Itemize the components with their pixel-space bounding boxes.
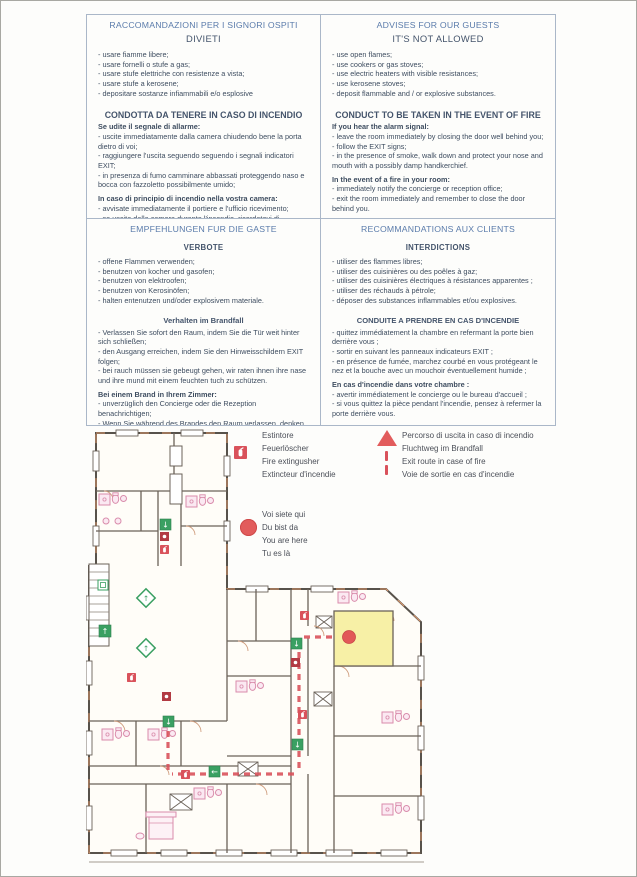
section-heading: CONDOTTA DA TENERE IN CASO DI INCENDIO [98,110,309,122]
list-item: - halten entenutzen und/oder explosivem … [98,296,309,306]
list-item: - follow the EXIT signs; [332,142,544,152]
fire-extinguisher-icon [160,545,169,554]
list-item: - usare fornelli o stufe a gas; [98,60,309,70]
section-lead: Bei einem Brand in Ihrem Zimmer: [98,390,309,400]
list-item: - offene Flammen verwenden; [98,257,309,267]
svg-text:↑: ↑ [102,627,109,636]
svg-text:↓: ↓ [294,741,301,750]
list-item: - si vous quittez la pièce pendant l'inc… [332,399,544,418]
svg-text:↑: ↑ [143,644,149,653]
exit-sign-icon: ← [209,766,220,777]
list-item: - in presenza di fumo camminare abbassat… [98,171,309,190]
list-item: - avvisate immediatamente il portiere e … [98,204,309,214]
spacer [98,99,309,103]
list-item: - leave the room immediately by closing … [332,132,544,142]
section-heading: CONDUCT TO BE TAKEN IN THE EVENT OF FIRE [332,110,544,122]
list-item: - in the presence of smoke, walk down an… [332,151,544,170]
shaft [170,446,182,504]
spacer [332,419,544,423]
notice-grid: RACCOMANDAZIONI PER I SIGNORI OSPITIDIVI… [86,14,556,426]
list-item: - deposit flammable and / or explosive s… [332,89,544,99]
list-item: - unverzüglich den Concierge oder die Re… [98,399,309,418]
svg-text:↓: ↓ [165,718,172,727]
list-item: - utiliser des cuisinières ou des poêles… [332,267,544,277]
section-lead: In the event of a fire in your room: [332,175,544,185]
list-item: - en présence de fumée, marchez courbé e… [332,357,544,376]
panel-subtitle: DIVIETI [98,33,309,46]
section-heading: Verhalten im Brandfall [98,316,309,326]
section-lead: If you hear the alarm signal: [332,122,544,132]
exit-sign-icon: ↓ [163,716,174,727]
panel-english: ADVISES FOR OUR GUESTSIT'S NOT ALLOWED- … [321,15,555,219]
list-item: - benutzen von elektroofen; [98,276,309,286]
panel-subtitle: VERBOTE [98,243,309,253]
section-heading: CONDUITE A PRENDRE EN CAS D'INCENDIE [332,316,544,326]
exit-sign-icon: ↑ [99,625,111,637]
list-item: - Verlassen Sie sofort den Raum, indem S… [98,328,309,347]
panel-title: RACCOMANDAZIONI PER I SIGNORI OSPITI [98,20,309,32]
list-item: - sortir en suivant les panneaux indicat… [332,347,544,357]
list-item: - usare fiamme libere; [98,50,309,60]
panel-german: EMPFEHLUNGEN FUR DIE GASTEVERBOTE- offen… [87,219,321,425]
fire-extinguisher-icon [181,770,190,779]
list-item: - den Ausgang erreichen, indem Sie den H… [98,347,309,366]
list-item: - utiliser des flammes libres; [332,257,544,267]
panel-french: RECOMMANDATIONS AUX CLIENTSINTERDICTIONS… [321,219,555,425]
panel-title: EMPFEHLUNGEN FUR DIE GASTE [98,224,309,236]
list-item: - exit the room immediately and remember… [332,194,544,213]
fire-extinguisher-icon [127,673,136,682]
svg-text:↓: ↓ [162,521,169,530]
svg-text:↑: ↑ [143,594,149,603]
section-lead: Se udite il segnale di allarme: [98,122,309,132]
spacer [332,214,544,218]
fire-extinguisher-icon [300,611,309,620]
exit-sign-icon: ↓ [160,519,171,530]
scanned-notice-page: RACCOMANDAZIONI PER I SIGNORI OSPITIDIVI… [0,0,637,877]
evacuation-plan-icon [98,580,108,590]
panel-title: RECOMMANDATIONS AUX CLIENTS [332,224,544,236]
svg-text:←: ← [211,768,218,777]
list-item: - déposer des substances inflammables et… [332,296,544,306]
alarm-icon [162,692,171,701]
list-item: - use cookers or gas stoves; [332,60,544,70]
section-lead: En cas d'incendie dans votre chambre : [332,380,544,390]
list-item: - bei rauch müssen sie gebeugt gehen, wi… [98,366,309,385]
list-item: - immediately notify the concierge or re… [332,184,544,194]
spacer [98,305,309,309]
list-item: - raggiungere l'uscita seguendo seguendo… [98,151,309,170]
list-item: - Wenn Sie während des Brandes den Raum … [98,419,309,425]
list-item: - uscite immediatamente dalla camera chi… [98,132,309,151]
panel-subtitle: INTERDICTIONS [332,243,544,253]
svg-text:↓: ↓ [293,640,300,649]
alarm-icon [291,658,300,667]
list-item: - quittez immédiatement la chambre en re… [332,328,544,347]
list-item: - benutzen von kocher und gasofen; [98,267,309,277]
section-lead: In caso di principio di incendio nella v… [98,194,309,204]
fire-extinguisher-icon [298,710,307,719]
you-are-here-dot [343,631,356,644]
list-item: - utiliser des cuisinières électriques à… [332,276,544,286]
alarm-icon [160,532,169,541]
list-item: - utiliser des réchauds à pétrole; [332,286,544,296]
list-item: - use electric heaters with visible resi… [332,69,544,79]
panel-subtitle: IT'S NOT ALLOWED [332,33,544,46]
panel-italian: RACCOMANDAZIONI PER I SIGNORI OSPITIDIVI… [87,15,321,219]
spacer [332,305,544,309]
floor-plan: ↓ ↑ ↓ ↓ ← ↓ ↑ ↑ [86,426,426,871]
list-item: - usare stufe a kerosene; [98,79,309,89]
panel-title: ADVISES FOR OUR GUESTS [332,20,544,32]
list-item: - usare stufe elettriche con resistenze … [98,69,309,79]
spacer [332,99,544,103]
list-item: - use open flames; [332,50,544,60]
exit-sign-icon: ↓ [291,638,302,649]
list-item: - use kerosene stoves; [332,79,544,89]
list-item: - avertir immédiatement le concierge ou … [332,390,544,400]
list-item: - benutzen von Kerosinöfen; [98,286,309,296]
exit-sign-icon: ↓ [292,739,303,750]
list-item: - depositare sostanze infiammabili e/o e… [98,89,309,99]
